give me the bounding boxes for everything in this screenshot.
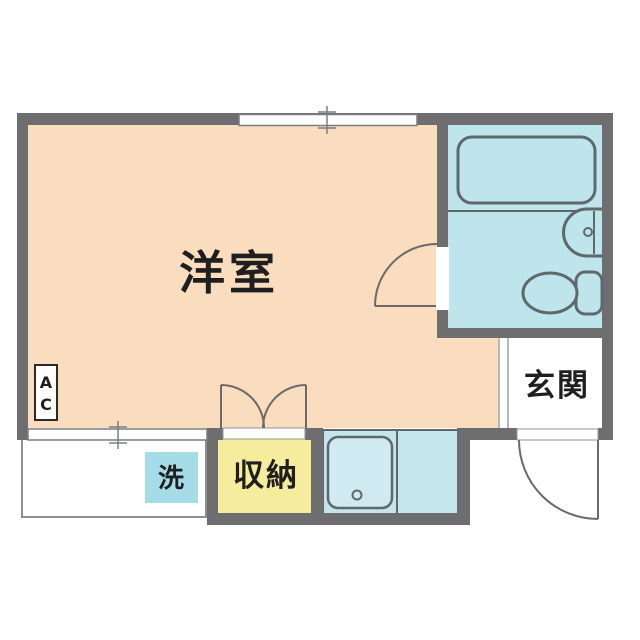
toilet-bowl: [523, 273, 577, 313]
storage-label: 収納: [233, 458, 299, 494]
floor-plan: A C 洋室 玄関 収納 洗: [0, 0, 640, 640]
wall-closet-kitchen: [311, 428, 323, 525]
toilet-tank: [576, 272, 602, 314]
entrance-door-opening: [517, 429, 598, 440]
wall-entrance-stub: [598, 428, 613, 440]
main-room-label: 洋室: [179, 246, 279, 300]
bathroom-door-opening: [436, 247, 449, 310]
ac-label-line2: C: [40, 395, 52, 414]
ac-label-line1: A: [40, 373, 53, 392]
wall-left: [17, 113, 28, 440]
laundry-label: 洗: [158, 464, 184, 494]
wall-bottom: [207, 513, 470, 525]
closet-door-opening: [223, 428, 305, 439]
wall-kitchen-right: [457, 428, 470, 525]
wall-bath-bottom: [437, 328, 613, 338]
floor-plan-canvas: A C 洋室 玄関 収納 洗: [0, 0, 640, 640]
entrance-label: 玄関: [524, 368, 590, 404]
bathroom-sink: [564, 209, 603, 256]
entrance-door-arc: [519, 440, 598, 519]
wall-right: [602, 113, 613, 440]
wall-closet-left: [207, 428, 218, 525]
window-top: [239, 115, 417, 126]
